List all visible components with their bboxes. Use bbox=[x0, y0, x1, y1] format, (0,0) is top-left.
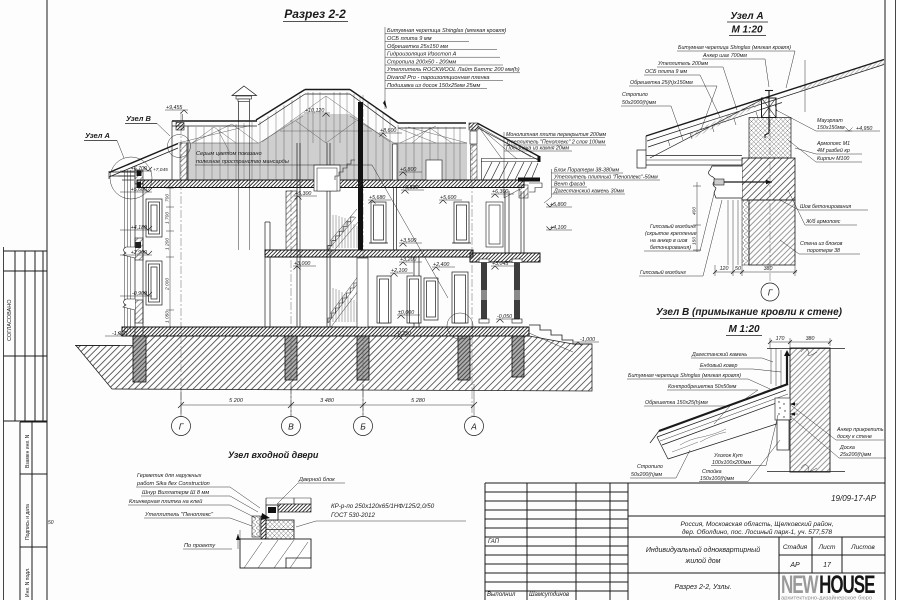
svg-text:150х100(h)мм: 150х100(h)мм bbox=[700, 476, 734, 482]
svg-text:Шамсутдинов: Шамсутдинов bbox=[529, 592, 569, 598]
svg-text:Дагестанский камень 30мм: Дагестанский камень 30мм bbox=[553, 188, 624, 195]
svg-text:Обрешетка 25х150 мм: Обрешетка 25х150 мм bbox=[387, 44, 448, 50]
svg-text:бетонирования): бетонирования) bbox=[650, 245, 691, 251]
svg-text:Дверной блок: Дверной блок bbox=[298, 476, 335, 483]
svg-text:120: 120 bbox=[720, 266, 729, 272]
svg-text:Узел А: Узел А bbox=[85, 131, 110, 140]
svg-text:ОСБ плита 9 мм: ОСБ плита 9 мм bbox=[645, 69, 688, 75]
svg-text:Гипсовый молдинг: Гипсовый молдинг bbox=[640, 269, 686, 276]
svg-text:380: 380 bbox=[764, 266, 773, 272]
svg-text:Индивидуальный одноквартирный: Индивидуальный одноквартирный bbox=[646, 546, 760, 554]
svg-text:дер. Оболдино, пос. Лосиный па: дер. Оболдино, пос. Лосиный парк-1, уч. … bbox=[682, 528, 833, 536]
svg-text:ОСБ плита 9 мм: ОСБ плита 9 мм bbox=[387, 36, 432, 42]
svg-text:Подшивка из досок 150х25мм 25м: Подшивка из досок 150х25мм 25мм bbox=[387, 83, 480, 89]
svg-text:Узел А: Узел А bbox=[730, 11, 763, 22]
svg-text:25х200(h)мм: 25х200(h)мм bbox=[839, 452, 871, 458]
svg-text:Серым цветом показано: Серым цветом показано bbox=[196, 151, 262, 157]
svg-text:150х150мм: 150х150мм bbox=[817, 125, 845, 131]
svg-text:3 480: 3 480 bbox=[320, 398, 335, 404]
svg-text:150: 150 bbox=[692, 237, 698, 245]
svg-text:А: А bbox=[470, 422, 477, 432]
svg-text:М 1:20: М 1:20 bbox=[731, 25, 763, 36]
svg-text:работ Sika flex Construction: работ Sika flex Construction bbox=[136, 481, 210, 487]
svg-text:ГОСТ 530-2012: ГОСТ 530-2012 bbox=[331, 512, 375, 519]
svg-text:Анкер шаг 700мм: Анкер шаг 700мм bbox=[702, 53, 747, 59]
svg-text:Стропила 200х50 - 200мм: Стропила 200х50 - 200мм bbox=[387, 59, 456, 65]
svg-text:1 050: 1 050 bbox=[165, 311, 171, 323]
svg-text:Divaroll Pro - пароизоляционна: Divaroll Pro - пароизоляционная пленка bbox=[387, 75, 489, 81]
svg-text:Клинкерная плитка на клей: Клинкерная плитка на клей bbox=[129, 498, 202, 505]
svg-text:Стропило: Стропило bbox=[622, 92, 648, 98]
svg-text:Листов: Листов bbox=[850, 544, 875, 551]
svg-text:АР: АР bbox=[789, 562, 800, 569]
svg-text:Мауэрлат: Мауэрлат bbox=[817, 118, 843, 124]
svg-text:Дагестанский камень: Дагестанский камень bbox=[691, 351, 747, 358]
svg-text:400: 400 bbox=[692, 207, 698, 215]
svg-text:Герметик для наружных: Герметик для наружных bbox=[137, 473, 202, 479]
svg-text:поротерм 38: поротерм 38 bbox=[807, 248, 840, 254]
svg-text:Стена из блоков: Стена из блоков bbox=[800, 241, 843, 247]
svg-text:Контробрешетка 50х50мм: Контробрешетка 50х50мм bbox=[668, 384, 737, 390]
svg-text:Кирпич М100: Кирпич М100 bbox=[817, 156, 849, 162]
svg-text:Лист: Лист bbox=[818, 544, 836, 551]
svg-text:Ж/б армопояс: Ж/б армопояс bbox=[805, 219, 841, 225]
svg-text:полезное пространство мансарды: полезное пространство мансарды bbox=[196, 159, 289, 165]
svg-text:Доска: Доска bbox=[839, 445, 855, 451]
svg-text:Утеплитель плитный "Пеноплекс": Утеплитель плитный "Пеноплекс"-50мм bbox=[554, 174, 658, 181]
svg-text:Инв. N подл.: Инв. N подл. bbox=[25, 568, 31, 597]
svg-text:В: В bbox=[288, 422, 294, 432]
svg-text:Утеплитель ROCKWOOL Лайт Баттс: Утеплитель ROCKWOOL Лайт Баттс 200 мм(h) bbox=[386, 66, 520, 73]
svg-text:Анкер прикрепить: Анкер прикрепить bbox=[836, 427, 884, 433]
svg-text:Разрез 2-2: Разрез 2-2 bbox=[284, 7, 346, 21]
svg-text:Узел В: Узел В bbox=[126, 114, 152, 123]
svg-text:100х100х200мм: 100х100х200мм bbox=[712, 460, 751, 466]
svg-text:Подшивка из камня 20мм: Подшивка из камня 20мм bbox=[506, 146, 569, 152]
svg-text:Шов бетонирования: Шов бетонирования bbox=[800, 204, 851, 210]
svg-text:жилой дом: жилой дом bbox=[685, 557, 721, 565]
svg-text:Блок Поратерм 38-380мм: Блок Поратерм 38-380мм bbox=[554, 168, 620, 174]
svg-text:50: 50 bbox=[48, 520, 54, 526]
svg-text:Гидроизоляция Изостоп А: Гидроизоляция Изостоп А bbox=[387, 52, 457, 58]
svg-text:Узел В (примыкание кровли к с: Узел В (примыкание кровли к стене) bbox=[656, 307, 843, 318]
svg-text:Уголок Кут: Уголок Кут bbox=[714, 453, 743, 459]
svg-text:Стойка: Стойка bbox=[702, 468, 722, 475]
svg-text:КР-р-по 250х120х65/1НФ/125/2,0: КР-р-по 250х120х65/1НФ/125/2,0/50 bbox=[331, 503, 435, 510]
svg-text:1 700: 1 700 bbox=[165, 212, 171, 224]
svg-text:19/09-17-АР: 19/09-17-АР bbox=[831, 494, 877, 503]
svg-text:Утеплитель 200мм: Утеплитель 200мм bbox=[658, 61, 708, 67]
svg-text:Подпись и дата: Подпись и дата bbox=[25, 504, 31, 540]
svg-text:М 1:20: М 1:20 bbox=[728, 324, 760, 335]
svg-text:Стадия: Стадия bbox=[783, 543, 808, 551]
svg-text:5 200: 5 200 bbox=[229, 398, 244, 404]
svg-text:Битумная черепица Shinglas (мя: Битумная черепица Shinglas (мягкая кровл… bbox=[387, 28, 506, 34]
svg-text:Шнур Виллатерм Ш 8 мм: Шнур Виллатерм Ш 8 мм bbox=[142, 490, 209, 496]
svg-text:17: 17 bbox=[823, 562, 832, 569]
svg-text:Гипсовый молдинг: Гипсовый молдинг bbox=[650, 223, 696, 230]
svg-text:Взамен инв. N: Взамен инв. N bbox=[25, 434, 31, 468]
svg-text:Узел входной двери: Узел входной двери bbox=[228, 450, 319, 460]
svg-text:Россия, Московская область, Ще: Россия, Московская область, Щелковский р… bbox=[680, 520, 833, 528]
svg-text:Монолитная плита перекрытия 20: Монолитная плита перекрытия 200мм bbox=[506, 132, 606, 138]
svg-text:архитектурно-дизайнерское бюро: архитектурно-дизайнерское бюро bbox=[781, 595, 872, 600]
svg-text:2 000: 2 000 bbox=[165, 278, 171, 291]
svg-text:700: 700 bbox=[165, 194, 171, 202]
svg-text:на анкер в шов: на анкер в шов bbox=[650, 238, 688, 244]
svg-text:доску к стене: доску к стене bbox=[837, 434, 872, 440]
svg-text:Обрешетка 150х25(h)мм: Обрешетка 150х25(h)мм bbox=[645, 400, 708, 406]
svg-text:Ендовый ковер: Ендовый ковер bbox=[700, 362, 737, 369]
svg-text:Битумная черепица Shinglas (мя: Битумная черепица Shinglas (мягкая кровл… bbox=[678, 45, 791, 51]
svg-text:Битумная черепица Shinglas (мя: Битумная черепица Shinglas (мягкая кровл… bbox=[628, 373, 741, 379]
svg-text:4М разбей кр: 4М разбей кр bbox=[817, 147, 850, 154]
svg-text:50х2000(h)мм: 50х2000(h)мм bbox=[622, 100, 656, 106]
svg-text:Разрез 2-2, Узлы.: Разрез 2-2, Узлы. bbox=[674, 584, 731, 591]
svg-text:Утеплитель "Пеноплекс": Утеплитель "Пеноплекс" bbox=[144, 512, 214, 518]
svg-text:50: 50 bbox=[735, 266, 741, 272]
svg-text:(скрытое крепление: (скрытое крепление bbox=[645, 231, 697, 237]
svg-text:Вент фасад: Вент фасад bbox=[554, 182, 585, 188]
svg-text:1 200: 1 200 bbox=[165, 238, 171, 250]
svg-text:380: 380 bbox=[806, 336, 815, 342]
svg-text:Армопояс М1: Армопояс М1 bbox=[816, 141, 850, 147]
svg-text:5 280: 5 280 bbox=[411, 398, 426, 404]
svg-text:Выполнил: Выполнил bbox=[487, 592, 516, 598]
svg-text:170: 170 bbox=[776, 336, 785, 342]
svg-text:По проекту: По проекту bbox=[184, 543, 216, 549]
svg-text:+7,045: +7,045 bbox=[153, 167, 168, 173]
svg-text:ГАП: ГАП bbox=[488, 539, 500, 545]
svg-text:Стропило: Стропило bbox=[637, 464, 663, 470]
svg-text:СОГЛАСОВАНО: СОГЛАСОВАНО bbox=[7, 299, 13, 341]
svg-text:Б: Б bbox=[360, 422, 366, 432]
svg-text:Обрешетка 25(h)х150мм: Обрешетка 25(h)х150мм bbox=[630, 80, 693, 86]
svg-text:50х200(h)мм: 50х200(h)мм bbox=[631, 472, 662, 478]
